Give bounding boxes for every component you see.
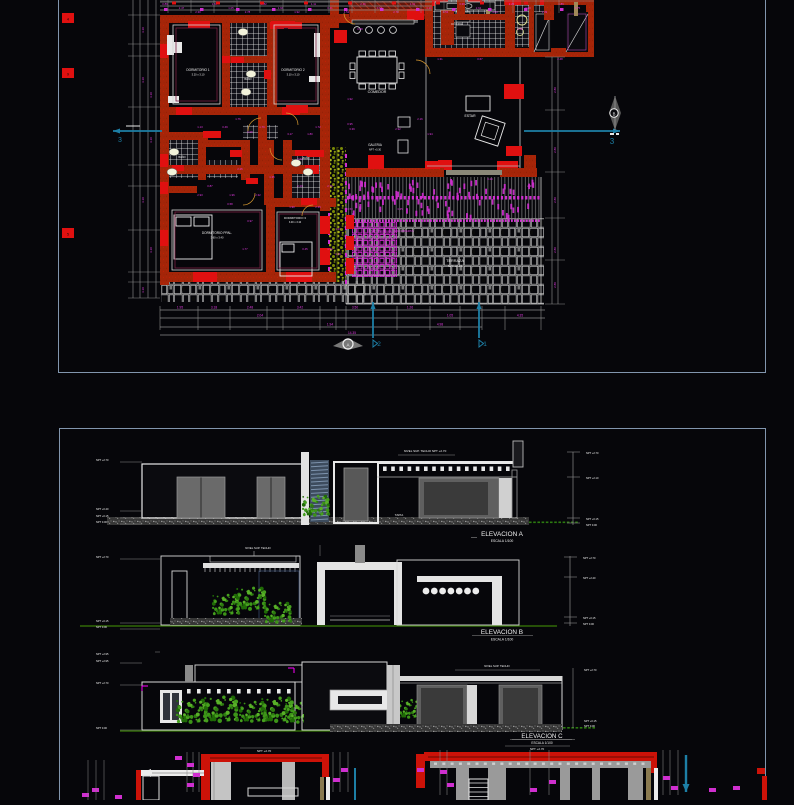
svg-text:3.18: 3.18 [211,306,217,310]
svg-text:ELEVACION B: ELEVACION B [481,629,523,636]
svg-text:3: 3 [118,137,122,144]
svg-text:NPT +2.95: NPT +2.95 [96,652,109,656]
svg-text:2.80: 2.80 [553,87,557,93]
svg-text:3.10 x 3.10: 3.10 x 3.10 [287,73,300,77]
svg-text:0.89: 0.89 [162,2,168,6]
svg-text:2.32: 2.32 [255,193,261,197]
svg-text:B: B [613,112,616,117]
svg-text:ELEVACION C: ELEVACION C [521,733,563,740]
svg-text:DORMITORIO 3: DORMITORIO 3 [284,216,306,220]
svg-text:2.80: 2.80 [553,247,557,253]
svg-text:2.48: 2.48 [557,57,563,61]
svg-text:NPT 0.00: NPT 0.00 [96,726,107,730]
svg-text:1.13: 1.13 [197,125,203,129]
svg-text:2.36: 2.36 [527,184,533,188]
svg-text:2.78: 2.78 [327,184,333,188]
svg-text:3.10: 3.10 [141,287,145,293]
svg-text:1.11: 1.11 [311,2,317,6]
svg-text:1.39: 1.39 [542,10,548,14]
svg-text:3: 3 [610,137,615,146]
svg-text:1.31: 1.31 [437,57,443,61]
svg-text:NPT 0.00: NPT 0.00 [584,724,595,728]
svg-text:1.05: 1.05 [447,314,453,318]
svg-text:1.26: 1.26 [407,306,413,310]
svg-text:2: 2 [377,341,381,348]
svg-text:NPT +2.70: NPT +2.70 [96,681,109,685]
svg-text:1.10: 1.10 [426,6,432,10]
svg-text:0.67: 0.67 [477,57,483,61]
svg-text:3.10: 3.10 [149,247,153,253]
svg-text:2.16: 2.16 [417,117,423,121]
svg-text:3.10: 3.10 [149,137,153,143]
svg-text:2.80: 2.80 [553,282,557,288]
svg-text:0.95: 0.95 [347,122,353,126]
svg-text:1.76: 1.76 [235,117,241,121]
svg-text:1.80: 1.80 [307,132,313,136]
svg-text:1.92: 1.92 [294,10,300,14]
svg-text:3.10: 3.10 [149,92,153,98]
svg-text:NPT +2.70: NPT +2.70 [530,747,545,751]
svg-text:NPT 0.00: NPT 0.00 [586,523,597,527]
svg-text:NPT +0.15: NPT +0.15 [583,616,596,620]
svg-text:3.10: 3.10 [141,27,145,33]
svg-text:3.29: 3.29 [487,177,493,181]
svg-text:NPT +2.70: NPT +2.70 [96,555,109,559]
svg-text:DORMITORIO PPAL.: DORMITORIO PPAL. [202,231,232,235]
svg-text:ESCALA 1/100: ESCALA 1/100 [491,539,514,543]
svg-text:14.35: 14.35 [348,331,356,335]
svg-text:NPT +0.15: NPT +0.15 [448,264,463,268]
svg-text:4.35: 4.35 [517,314,523,318]
svg-text:2.08: 2.08 [247,130,253,134]
svg-text:2.25: 2.25 [509,2,515,6]
svg-text:1.94: 1.94 [427,132,433,136]
svg-text:NPT +2.70: NPT +2.70 [583,556,596,560]
svg-text:NIVEL SUP. TECHO: NIVEL SUP. TECHO [484,664,510,668]
svg-text:2.04: 2.04 [257,314,263,318]
svg-text:3.10: 3.10 [141,77,145,83]
svg-text:NPT +2.40: NPT +2.40 [583,576,596,580]
svg-text:0.41: 0.41 [327,6,333,10]
svg-text:2.62: 2.62 [476,6,482,10]
svg-text:NPT +0.15: NPT +0.15 [96,619,109,623]
svg-text:NPT +2.70: NPT +2.70 [584,668,597,672]
svg-text:1.23: 1.23 [335,227,341,231]
svg-text:COCINA: COCINA [451,22,463,26]
svg-text:1.79: 1.79 [259,125,265,129]
svg-text:2.83: 2.83 [517,27,523,31]
svg-text:1.92: 1.92 [347,97,353,101]
svg-text:3.10: 3.10 [141,197,145,203]
svg-text:NPT +2.95: NPT +2.95 [96,659,109,663]
svg-text:NPT TERRAZA DESCUBIERTA: NPT TERRAZA DESCUBIERTA [371,229,413,233]
svg-text:ESTAR: ESTAR [464,114,476,118]
svg-text:NIVEL SUP. TECHO: NIVEL SUP. TECHO [245,546,271,550]
svg-text:0.53: 0.53 [443,10,449,14]
svg-text:2.16: 2.16 [360,2,366,6]
svg-text:1.77: 1.77 [242,247,248,251]
svg-text:NPT +2.10: NPT +2.10 [586,476,599,480]
svg-text:3.17: 3.17 [287,132,293,136]
svg-text:NPT +2.70: NPT +2.70 [257,749,272,753]
svg-text:1.05: 1.05 [228,6,234,10]
svg-text:2.47: 2.47 [179,6,185,10]
svg-text:2.25: 2.25 [237,167,243,171]
svg-text:NIVEL SUP. TECHO NPT +2.70: NIVEL SUP. TECHO NPT +2.70 [404,449,447,453]
svg-text:GALERIA: GALERIA [368,143,383,147]
svg-text:2.48: 2.48 [247,306,253,310]
svg-text:DORMITORIO 2: DORMITORIO 2 [281,68,305,72]
svg-text:DORMITORIO 1: DORMITORIO 1 [186,68,210,72]
svg-text:COMEDOR: COMEDOR [368,90,387,94]
svg-text:2.80: 2.80 [553,197,557,203]
svg-text:3.39: 3.39 [459,2,465,6]
svg-text:0.87: 0.87 [207,184,213,188]
svg-text:2.52: 2.52 [297,157,303,161]
svg-text:1.35: 1.35 [269,175,275,179]
svg-text:1.72: 1.72 [315,125,321,129]
svg-text:2.78: 2.78 [245,10,251,14]
svg-text:NPT +2.70: NPT +2.70 [586,451,599,455]
svg-text:ELEVACION A: ELEVACION A [481,531,524,538]
svg-text:2.92: 2.92 [395,127,401,131]
svg-text:NPT 0.00: NPT 0.00 [96,520,107,524]
svg-text:NPT 0.00: NPT 0.00 [583,622,594,626]
svg-text:3.35: 3.35 [397,207,403,211]
svg-text:ESCALA 1/100: ESCALA 1/100 [531,741,552,745]
svg-text:2.29: 2.29 [297,184,303,188]
svg-text:3.03: 3.03 [492,10,498,14]
svg-text:NPT +0.40: NPT +0.40 [96,507,109,511]
svg-text:NPT +0.15: NPT +0.15 [586,517,599,521]
svg-text:1.90: 1.90 [289,205,295,209]
svg-text:0.75: 0.75 [575,6,581,10]
svg-text:1.95: 1.95 [177,306,183,310]
svg-text:0.58: 0.58 [227,202,233,206]
svg-text:3.50: 3.50 [352,306,358,310]
svg-text:NPT 0.00: NPT 0.00 [96,625,107,629]
svg-text:2.80: 2.80 [553,147,557,153]
svg-text:0.49: 0.49 [222,125,228,129]
svg-text:4.98: 4.98 [437,323,443,327]
svg-text:NPT +2.70: NPT +2.70 [96,458,109,462]
svg-text:3.00 x 3.10: 3.00 x 3.10 [289,221,302,224]
svg-text:1.94: 1.94 [327,323,333,327]
svg-text:0.97: 0.97 [247,219,253,223]
svg-text:NPT +0.15: NPT +0.15 [96,514,109,518]
svg-text:3.60 x 3.40: 3.60 x 3.40 [211,236,224,240]
svg-text:ESCALA 1/100: ESCALA 1/100 [491,638,514,642]
svg-text:3.39: 3.39 [335,252,341,256]
svg-text:2.93: 2.93 [197,193,203,197]
svg-text:1: 1 [483,341,487,348]
svg-text:1.10: 1.10 [410,2,416,6]
svg-text:NPT +0.15: NPT +0.15 [584,719,597,723]
svg-text:TERRAZA: TERRAZA [446,259,464,263]
svg-text:TAPIA: TAPIA [395,513,403,517]
svg-text:2.39: 2.39 [315,205,321,209]
svg-text:3.39: 3.39 [349,127,355,131]
svg-text:1.96: 1.96 [229,193,235,197]
svg-text:0.68: 0.68 [357,27,363,31]
svg-text:1.99: 1.99 [327,247,333,251]
svg-text:0.45: 0.45 [302,247,308,251]
svg-text:NPT +0.30: NPT +0.30 [369,149,382,152]
svg-text:3.20 x 3.10: 3.20 x 3.10 [192,73,205,77]
svg-text:2.78: 2.78 [393,10,399,14]
svg-text:3.42: 3.42 [297,306,303,310]
svg-text:A: A [346,343,349,348]
svg-text:0.53: 0.53 [347,207,353,211]
